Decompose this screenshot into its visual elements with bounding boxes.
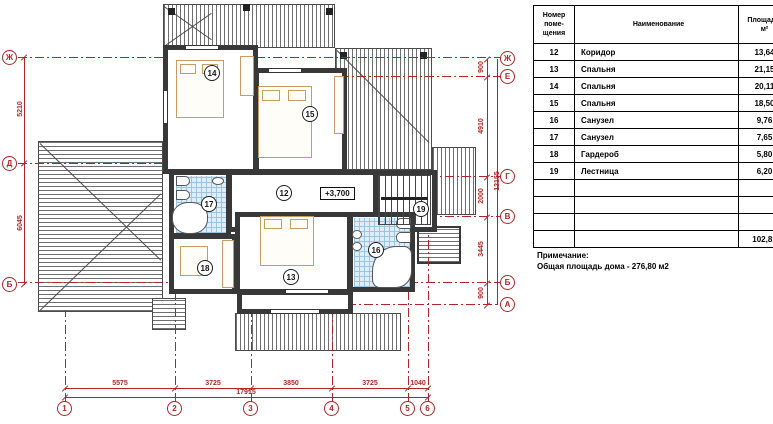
room-label-12: 12 [276,185,292,201]
table-row: 12 Коридор 13,64 [534,44,773,61]
dim-label: 4910 [478,108,486,144]
cell-room-number: 14 [534,78,575,95]
cell-room-name: Спальня [575,78,739,95]
axis-number: 6 [425,404,429,413]
stair-handrail [381,197,428,200]
cell-room-name: Спальня [575,61,739,78]
axis-circle-v-right: В [500,209,515,224]
room-number: 12 [280,189,289,198]
axis-circle-2: 2 [167,401,182,416]
dim-label: 5575 [100,380,140,388]
dim-label: 5210 [17,89,25,129]
axis-letter: Г [505,172,510,181]
axis-circle-3: 3 [243,401,258,416]
axis-circle-5: 5 [400,401,415,416]
dim-label: 3850 [271,380,311,388]
cell-room-name: Гардероб [575,146,739,163]
cell-room-name: Коридор [575,44,739,61]
room-number: 19 [417,205,426,214]
room-label-19: 19 [413,201,429,217]
axis-line-a [330,304,500,305]
table-row: 14 Спальня 20,11 [534,78,773,95]
porch-steps [235,313,401,351]
axis-letter: Е [505,72,510,81]
toilet [176,190,190,200]
header-room-area: Площадь, м² [739,6,773,44]
axis-circle-g-right: Г [500,169,515,184]
dim-label: 2000 [478,178,486,214]
dim-label: 3725 [350,380,390,388]
axis-line-zh [18,57,500,58]
axis-letter: Б [505,278,511,287]
cell-room-name: Санузел [575,129,739,146]
table-header-row: Номер поме- щения Наименование Площадь, … [534,6,773,44]
axis-letter: Ж [504,54,511,63]
room-spec-table: Номер поме- щения Наименование Площадь, … [533,5,773,248]
pillow [290,219,308,229]
axis-circle-a-right: А [500,297,515,312]
toilet [176,176,190,186]
roof-left-wing [38,141,163,312]
window [285,289,329,294]
cell-room-name: Спальня [575,95,739,112]
cell-room-number: 15 [534,95,575,112]
cell-room-area: 7,65 [739,129,773,146]
pillow [262,90,280,101]
desk [240,56,254,96]
axis-circle-b-left: Б [2,277,17,292]
cell-room-number: 13 [534,61,575,78]
pillow [180,64,196,74]
room-number: 16 [372,246,381,255]
window [163,90,168,124]
dim-label: 3445 [478,231,486,267]
cell-room-area: 5,80 [739,146,773,163]
sink [212,177,224,185]
axis-number: 2 [172,404,176,413]
empty-cell [534,180,575,197]
room-label-17: 17 [201,196,217,212]
dim-label: 900 [478,278,486,308]
window [268,68,302,73]
empty-cell [739,214,773,231]
axis-letter: Ж [6,53,13,62]
steps-bottom-left [152,298,186,330]
toilet [396,232,411,243]
roof-right-lower [432,147,476,215]
empty-cell [534,231,575,248]
room-number: 13 [287,273,296,282]
elevation-mark: +3,700 [320,187,355,200]
dim-line-bottom-total [65,397,428,398]
cell-room-number: 12 [534,44,575,61]
room-label-18: 18 [197,260,213,276]
empty-cell [575,214,739,231]
note-title: Примечание: [537,250,669,261]
cell-room-number: 19 [534,163,575,180]
axis-circle-zh-left: Ж [2,50,17,65]
chimney [168,8,175,15]
pillow [264,219,282,229]
table-row: 13 Спальня 21,15 [534,61,773,78]
room-number: 15 [306,110,315,119]
header-room-name: Наименование [575,6,739,44]
header-room-number: Номер поме- щения [534,6,575,44]
cell-room-area: 18,50 [739,95,773,112]
wardrobe [334,76,344,134]
axis-letter: Б [7,280,13,289]
table-empty-row [534,197,773,214]
axis-line-6 [428,235,429,402]
axis-circle-d-left: Д [2,156,17,171]
dim-label: 900 [478,52,486,82]
cell-total-area: 102,81 [739,231,773,248]
axis-number: 3 [248,404,252,413]
dim-label-total: 17915 [226,389,266,397]
axis-circle-b-right: Б [500,275,515,290]
window [270,309,320,314]
empty-cell [575,231,739,248]
room-label-13: 13 [283,269,299,285]
wardrobe [222,240,234,288]
cell-room-number: 16 [534,112,575,129]
note-block: Примечание: Общая площадь дома - 276,80 … [537,250,669,272]
axis-letter: А [505,300,511,309]
cell-room-number: 18 [534,146,575,163]
table-row: 18 Гардероб 5,80 [534,146,773,163]
table-row: 16 Санузел 9,76 [534,112,773,129]
cell-room-name: Санузел [575,112,739,129]
axis-number: 1 [62,404,66,413]
axis-number: 4 [329,404,333,413]
pillow [288,90,306,101]
axis-line-e [340,76,500,77]
axis-circle-zh-right: Ж [500,51,515,66]
axis-line-d [18,163,168,164]
spec-table-grid: Номер поме- щения Наименование Площадь, … [533,5,773,248]
cell-room-area: 21,15 [739,61,773,78]
room-number: 17 [205,200,214,209]
axis-circle-6: 6 [420,401,435,416]
room-number: 14 [208,69,217,78]
dim-label: 3725 [193,380,233,388]
dim-label: 6045 [17,203,25,243]
room-label-14: 14 [204,65,220,81]
table-row: 15 Спальня 18,50 [534,95,773,112]
axis-circle-1: 1 [57,401,72,416]
chimney [326,8,333,15]
room-label-15: 15 [302,106,318,122]
empty-cell [739,197,773,214]
axis-letter: Д [7,159,13,168]
cell-room-area: 9,76 [739,112,773,129]
table-row: 17 Санузел 7,65 [534,129,773,146]
sink [352,242,362,251]
table-empty-row [534,214,773,231]
table-empty-row [534,180,773,197]
table-row: 19 Лестница 6,20 [534,163,773,180]
cell-room-area: 13,64 [739,44,773,61]
room-number: 18 [201,264,210,273]
room-label-16: 16 [368,242,384,258]
stair-treads [378,175,431,225]
sink [352,230,362,239]
chimney [243,4,250,11]
cell-room-area: 6,20 [739,163,773,180]
axis-number: 5 [405,404,409,413]
axis-letter: В [505,212,511,221]
roof-right-upper [335,48,432,170]
note-text: Общая площадь дома - 276,80 м2 [537,261,669,272]
empty-cell [575,180,739,197]
cell-room-area: 20,11 [739,78,773,95]
empty-cell [739,180,773,197]
axis-circle-4: 4 [324,401,339,416]
cell-room-number: 17 [534,129,575,146]
axis-circle-e-right: Е [500,69,515,84]
empty-cell [575,197,739,214]
drawing-canvas: 14 15 17 12 19 18 13 16 +3,700 5575 3725… [0,0,773,424]
empty-cell [534,214,575,231]
window [185,45,219,50]
empty-cell [534,197,575,214]
dim-line-right [487,59,488,305]
cell-room-name: Лестница [575,163,739,180]
dim-label: 1040 [400,380,436,388]
table-total-row: 102,81 [534,231,773,248]
